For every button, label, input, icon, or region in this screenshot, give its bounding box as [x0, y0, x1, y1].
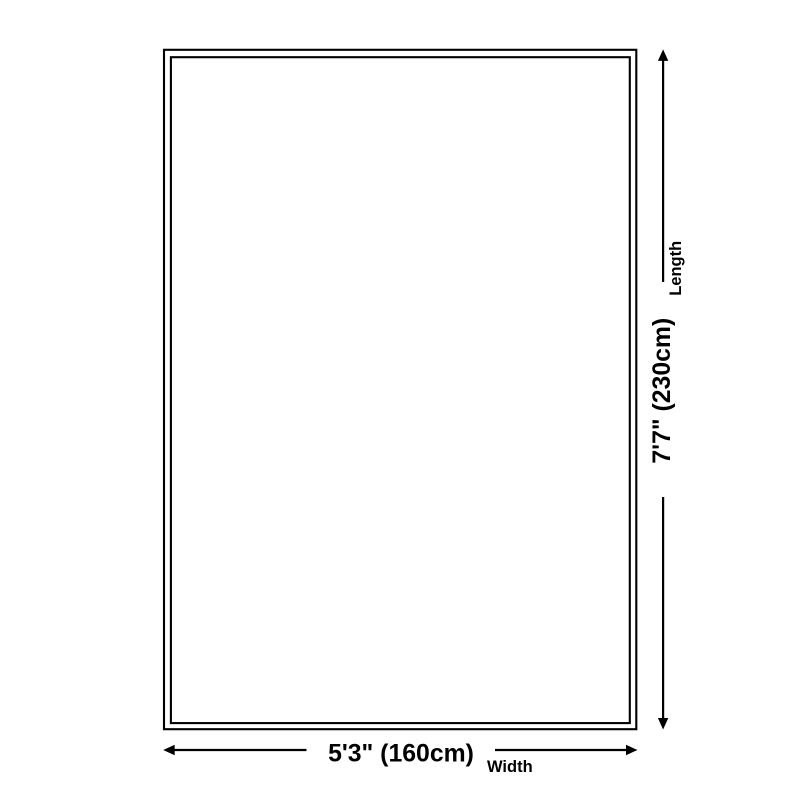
- svg-text:Width: Width: [487, 758, 533, 776]
- svg-text:5'3" (160cm): 5'3" (160cm): [328, 741, 474, 768]
- svg-text:7'7" (230cm): 7'7" (230cm): [649, 318, 676, 464]
- svg-text:Length: Length: [667, 241, 685, 296]
